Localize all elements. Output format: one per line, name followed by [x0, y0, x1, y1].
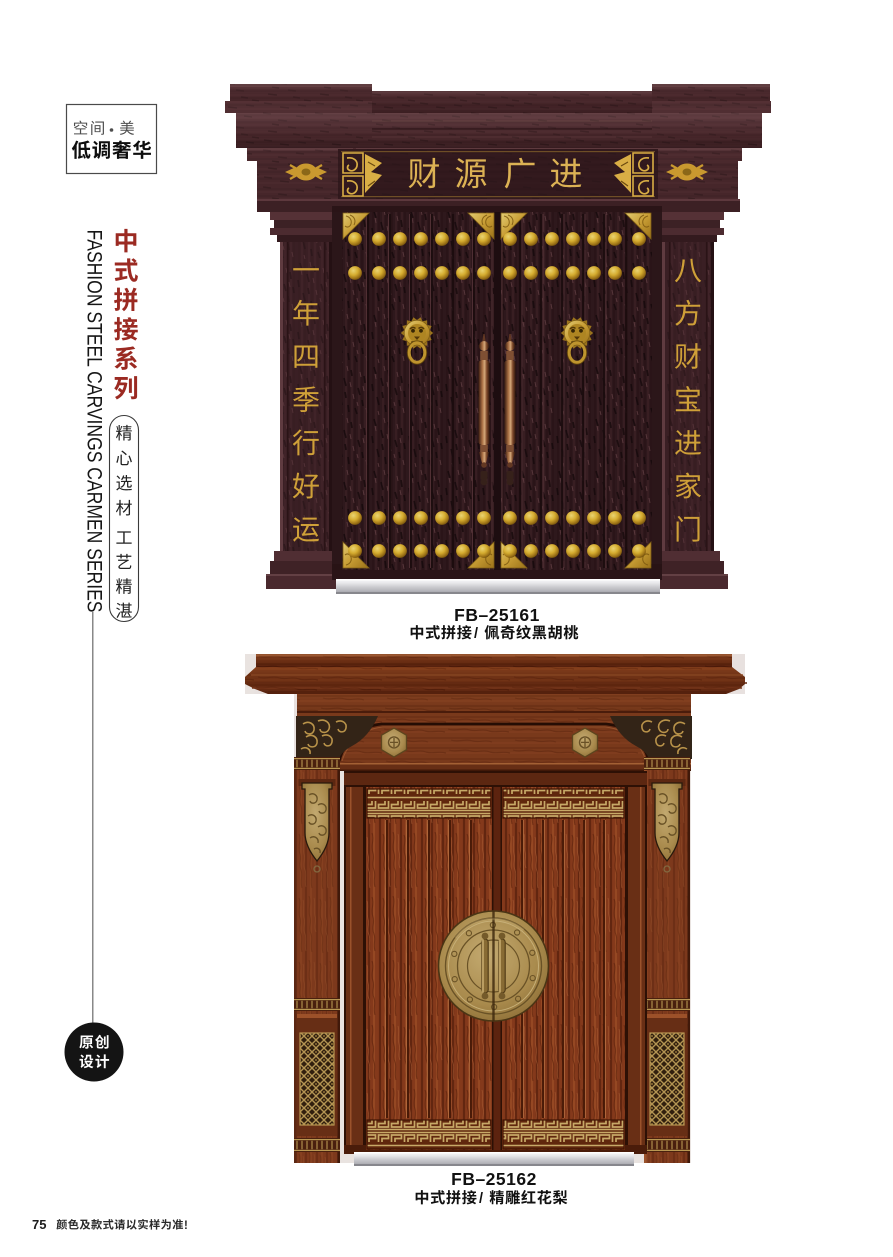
svg-text:/: /	[479, 1191, 483, 1207]
svg-text:/: /	[474, 626, 478, 642]
svg-text:FB–25162: FB–25162	[451, 1169, 537, 1189]
svg-text:FASHION STEEL CARVINGS CARMEN: FASHION STEEL CARVINGS CARMEN SERIES	[83, 230, 107, 613]
svg-text:!: !	[184, 1220, 188, 1232]
svg-text:75: 75	[32, 1217, 46, 1232]
svg-text:FB–25161: FB–25161	[454, 605, 540, 625]
